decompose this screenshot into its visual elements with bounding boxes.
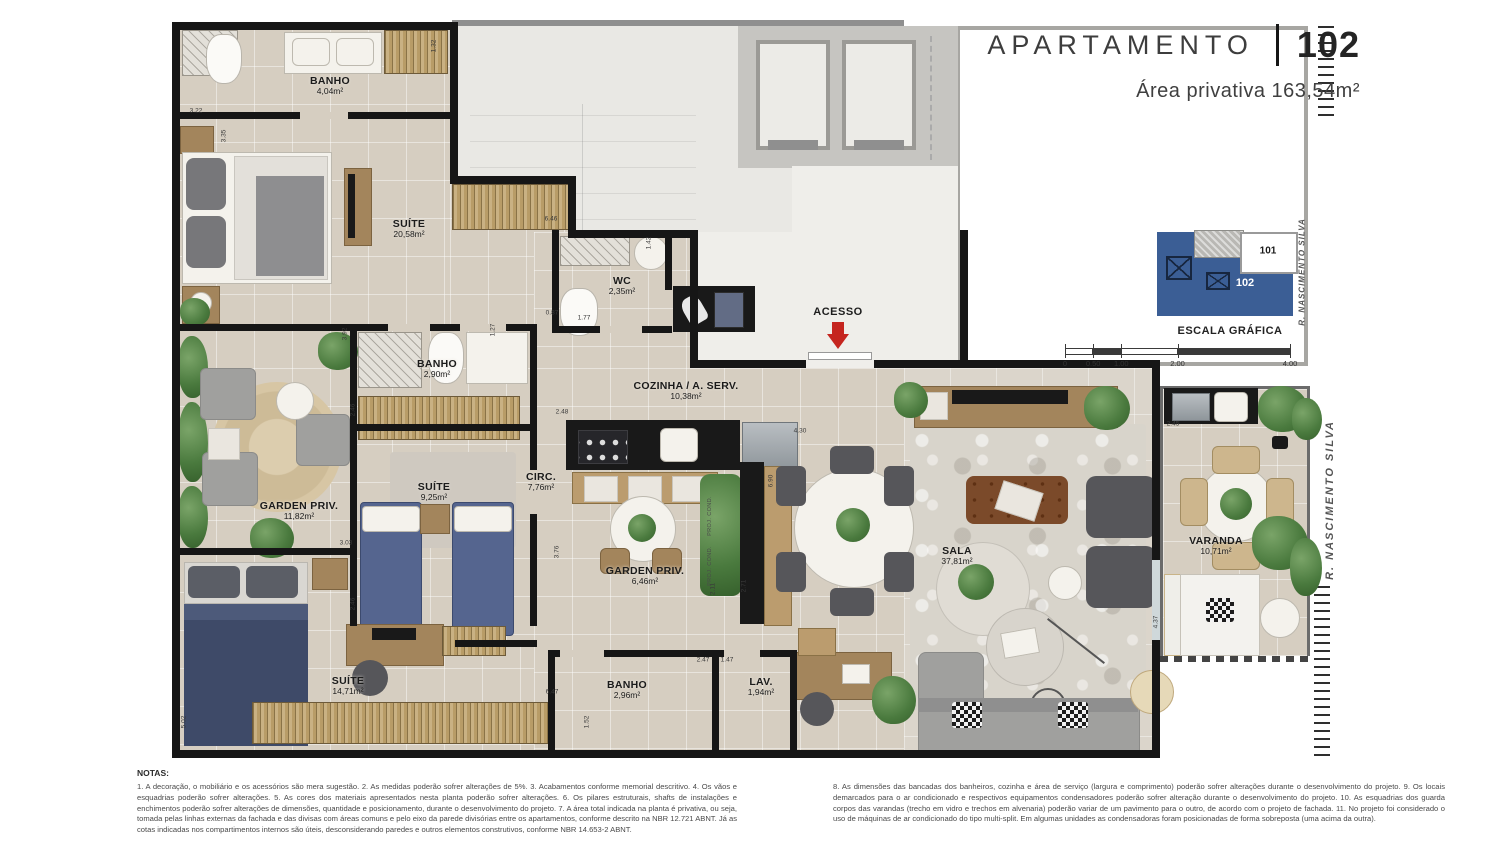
scale-tick (1093, 344, 1094, 358)
key-plan-core (1194, 230, 1244, 258)
key-plan-street-label: R. NASCIMENTO SILVA (1298, 218, 1307, 326)
dimension-label: 1.27 (490, 324, 497, 337)
scale-segment (1093, 348, 1121, 355)
scale-segment (1065, 348, 1093, 355)
dimension-label: 4.37 (1153, 616, 1160, 629)
dimension-label: 1.77 (578, 315, 591, 322)
dimension-label: 2.48 (556, 409, 569, 416)
dimension-label: 3.03 (340, 540, 353, 547)
scale-segment (1178, 348, 1290, 355)
proj-cond-label: PROJ. COND. (707, 496, 713, 536)
dimension-label: 6.47 (546, 689, 559, 696)
scale-title: ESCALA GRÁFICA (1150, 325, 1310, 337)
dimension-label: 1.52 (584, 716, 591, 729)
unit-number: 102 (1297, 24, 1360, 66)
scale-tick-label: 4.00 (1283, 359, 1298, 368)
scale-tick (1178, 344, 1179, 358)
scale-bar: 00.501.002.004.00 (1065, 342, 1291, 366)
notes-heading: NOTAS: (137, 768, 1457, 778)
dimension-label: 2.46 (350, 598, 357, 611)
title-divider (1276, 24, 1279, 66)
scale-tick-label: 2.00 (1170, 359, 1185, 368)
dimension-label: 3.35 (221, 130, 228, 143)
scale-tick (1065, 344, 1066, 358)
dimension-label: 3.76 (554, 546, 561, 559)
scale-segment (1121, 348, 1178, 355)
dimension-label: 1.42 (646, 237, 653, 250)
floor-plan: ACESSO R. NASCIMENTO SILVA BANHO4,04m²SU… (0, 0, 1500, 843)
dimension-label: 3.22 (190, 108, 203, 115)
dimension-layer: 3.223.351.326.461.420.871.771.273.922.46… (0, 0, 1500, 843)
page-title: APARTAMENTO (987, 30, 1254, 61)
notes-column-left: 1. A decoração, o mobiliário e os acessó… (137, 782, 737, 836)
scale-tick (1121, 344, 1122, 358)
notes-section: NOTAS: 1. A decoração, o mobiliário e os… (137, 768, 1457, 782)
scale-tick-label: 0 (1063, 359, 1067, 368)
dimension-label: 2.71 (741, 580, 748, 593)
notes-column-right: 8. As dimensões das bancadas dos banheir… (833, 782, 1445, 825)
dimension-label: 4.30 (794, 428, 807, 435)
key-plan-shaft (1206, 272, 1230, 290)
dimension-label: 0.87 (546, 310, 559, 317)
key-plan: 101 102 R. NASCIMENTO SILVA (1148, 214, 1318, 339)
private-area-label: Área privativa 163,54m² (987, 80, 1360, 103)
key-plan-101-label: 101 (1260, 246, 1277, 257)
dimension-label: 6.90 (768, 475, 775, 488)
title-block: APARTAMENTO 102 Área privativa 163,54m² (987, 24, 1360, 103)
scale-tick-label: 1.00 (1114, 359, 1129, 368)
dimension-label: 6.46 (545, 216, 558, 223)
dimension-label: 2.47 (697, 657, 710, 664)
key-plan-102-label: 102 (1236, 277, 1254, 289)
dimension-label: 5.02 (181, 716, 188, 729)
dimension-label: 2.45 (1167, 421, 1180, 428)
dimension-label: 2.46 (350, 404, 357, 417)
dimension-label: 1.32 (431, 40, 438, 53)
proj-cond-label: PROJ. COND. (707, 546, 713, 586)
key-plan-shaft (1166, 256, 1192, 280)
dimension-label: 1.47 (721, 657, 734, 664)
dimension-label: 3.92 (342, 328, 349, 341)
scale-tick-label: 0.50 (1086, 359, 1101, 368)
scale-tick (1290, 344, 1291, 358)
